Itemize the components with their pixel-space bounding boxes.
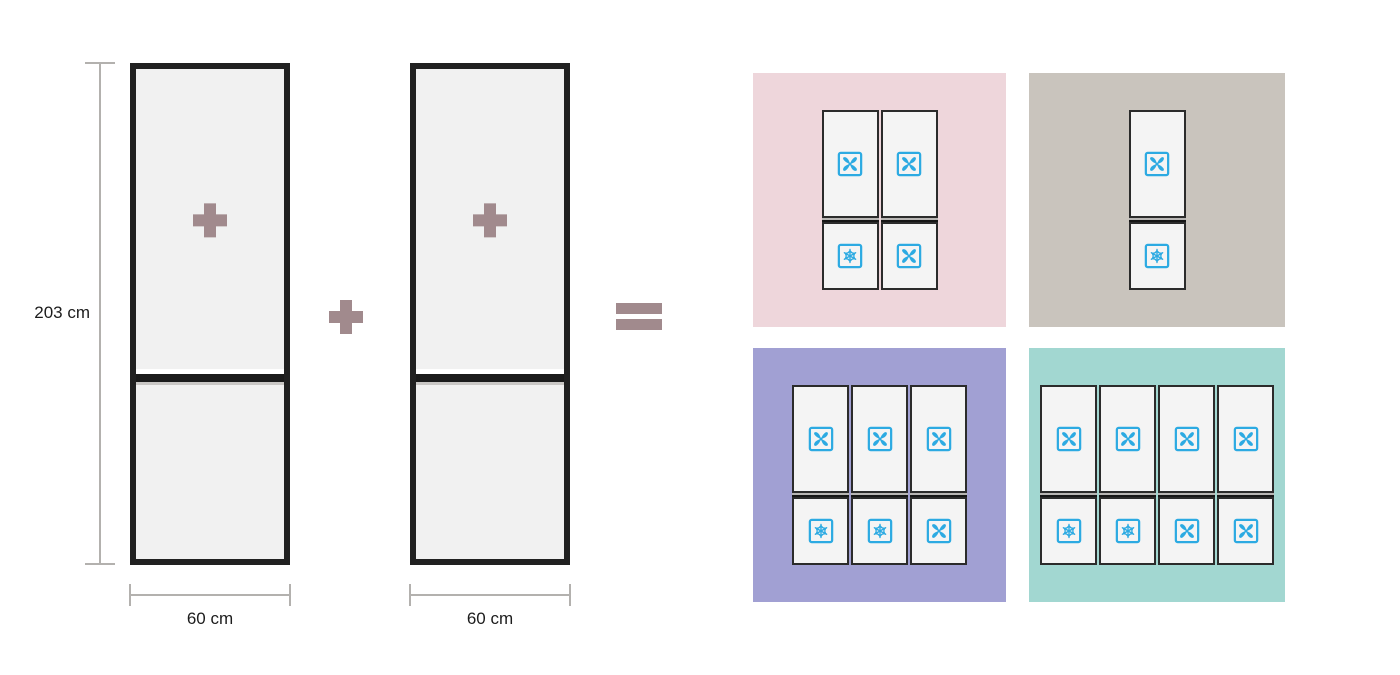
fan-icon bbox=[1144, 151, 1170, 177]
freezer-door bbox=[1099, 497, 1156, 565]
width-dimension-cap bbox=[289, 584, 291, 606]
snowflake-icon bbox=[1056, 518, 1082, 544]
door-column bbox=[910, 385, 967, 565]
config-panel-purple bbox=[753, 348, 1006, 602]
fan-icon bbox=[896, 151, 922, 177]
fridge-door bbox=[1217, 385, 1274, 493]
fridge-divider bbox=[416, 374, 564, 382]
width-dimension-line bbox=[410, 594, 570, 596]
fan-icon bbox=[808, 426, 834, 452]
snowflake-icon bbox=[808, 518, 834, 544]
freezer-door bbox=[1217, 497, 1274, 565]
fridge-right-freezer-compartment bbox=[416, 385, 564, 559]
fridge-left-freezer-compartment bbox=[136, 385, 284, 559]
fridge-door bbox=[881, 110, 938, 218]
plus-icon bbox=[473, 203, 507, 237]
height-dimension-line bbox=[99, 63, 101, 565]
height-label: 203 cm bbox=[18, 304, 90, 322]
mini-fridge bbox=[822, 110, 938, 290]
width-label: 60 cm bbox=[130, 609, 290, 629]
width-dimension-cap bbox=[409, 584, 411, 606]
door-column bbox=[1099, 385, 1156, 565]
fan-icon bbox=[1056, 426, 1082, 452]
equals-operator-icon bbox=[616, 303, 662, 330]
fridge-right bbox=[410, 63, 570, 565]
config-panel-teal bbox=[1029, 348, 1285, 602]
door-column bbox=[1040, 385, 1097, 565]
mini-fridge bbox=[1129, 110, 1186, 290]
door-column bbox=[851, 385, 908, 565]
fridge-door bbox=[1158, 385, 1215, 493]
fan-icon bbox=[1233, 518, 1259, 544]
fridge-door bbox=[910, 385, 967, 493]
fan-icon bbox=[1233, 426, 1259, 452]
snowflake-icon bbox=[1115, 518, 1141, 544]
width-dimension-line bbox=[130, 594, 290, 596]
height-dimension-cap-bottom bbox=[85, 563, 115, 565]
fridge-door bbox=[822, 110, 879, 218]
mini-fridge bbox=[792, 385, 967, 565]
fridge-divider bbox=[136, 374, 284, 382]
config-panel-pink bbox=[753, 73, 1006, 327]
fridge-right-fresh-compartment bbox=[416, 69, 564, 369]
freezer-door bbox=[881, 222, 938, 290]
freezer-door bbox=[822, 222, 879, 290]
door-column bbox=[1158, 385, 1215, 565]
fan-icon bbox=[896, 243, 922, 269]
height-dimension-cap-top bbox=[85, 62, 115, 64]
mini-fridge bbox=[1040, 385, 1274, 565]
door-column bbox=[881, 110, 938, 290]
door-column bbox=[1129, 110, 1186, 290]
snowflake-icon bbox=[867, 518, 893, 544]
fridge-door bbox=[851, 385, 908, 493]
fan-icon bbox=[1115, 426, 1141, 452]
config-panel-taupe bbox=[1029, 73, 1285, 327]
fridge-door bbox=[1040, 385, 1097, 493]
freezer-door bbox=[910, 497, 967, 565]
fridge-door bbox=[1129, 110, 1186, 218]
fridge-door bbox=[792, 385, 849, 493]
width-dimension-cap bbox=[129, 584, 131, 606]
freezer-door bbox=[1040, 497, 1097, 565]
fan-icon bbox=[1174, 426, 1200, 452]
door-column bbox=[822, 110, 879, 290]
fridge-door bbox=[1099, 385, 1156, 493]
fridge-left bbox=[130, 63, 290, 565]
fan-icon bbox=[867, 426, 893, 452]
fridge-left-fresh-compartment bbox=[136, 69, 284, 369]
fan-icon bbox=[926, 426, 952, 452]
fan-icon bbox=[837, 151, 863, 177]
door-column bbox=[792, 385, 849, 565]
freezer-door bbox=[1129, 222, 1186, 290]
width-dimension-cap bbox=[569, 584, 571, 606]
freezer-door bbox=[1158, 497, 1215, 565]
fridge-combination-diagram: 203 cm 60 cm 60 cm bbox=[0, 0, 1400, 675]
door-column bbox=[1217, 385, 1274, 565]
freezer-door bbox=[851, 497, 908, 565]
snowflake-icon bbox=[1144, 243, 1170, 269]
freezer-door bbox=[792, 497, 849, 565]
fan-icon bbox=[1174, 518, 1200, 544]
fan-icon bbox=[926, 518, 952, 544]
plus-icon bbox=[193, 203, 227, 237]
plus-operator-icon bbox=[329, 300, 363, 334]
width-label: 60 cm bbox=[410, 609, 570, 629]
snowflake-icon bbox=[837, 243, 863, 269]
